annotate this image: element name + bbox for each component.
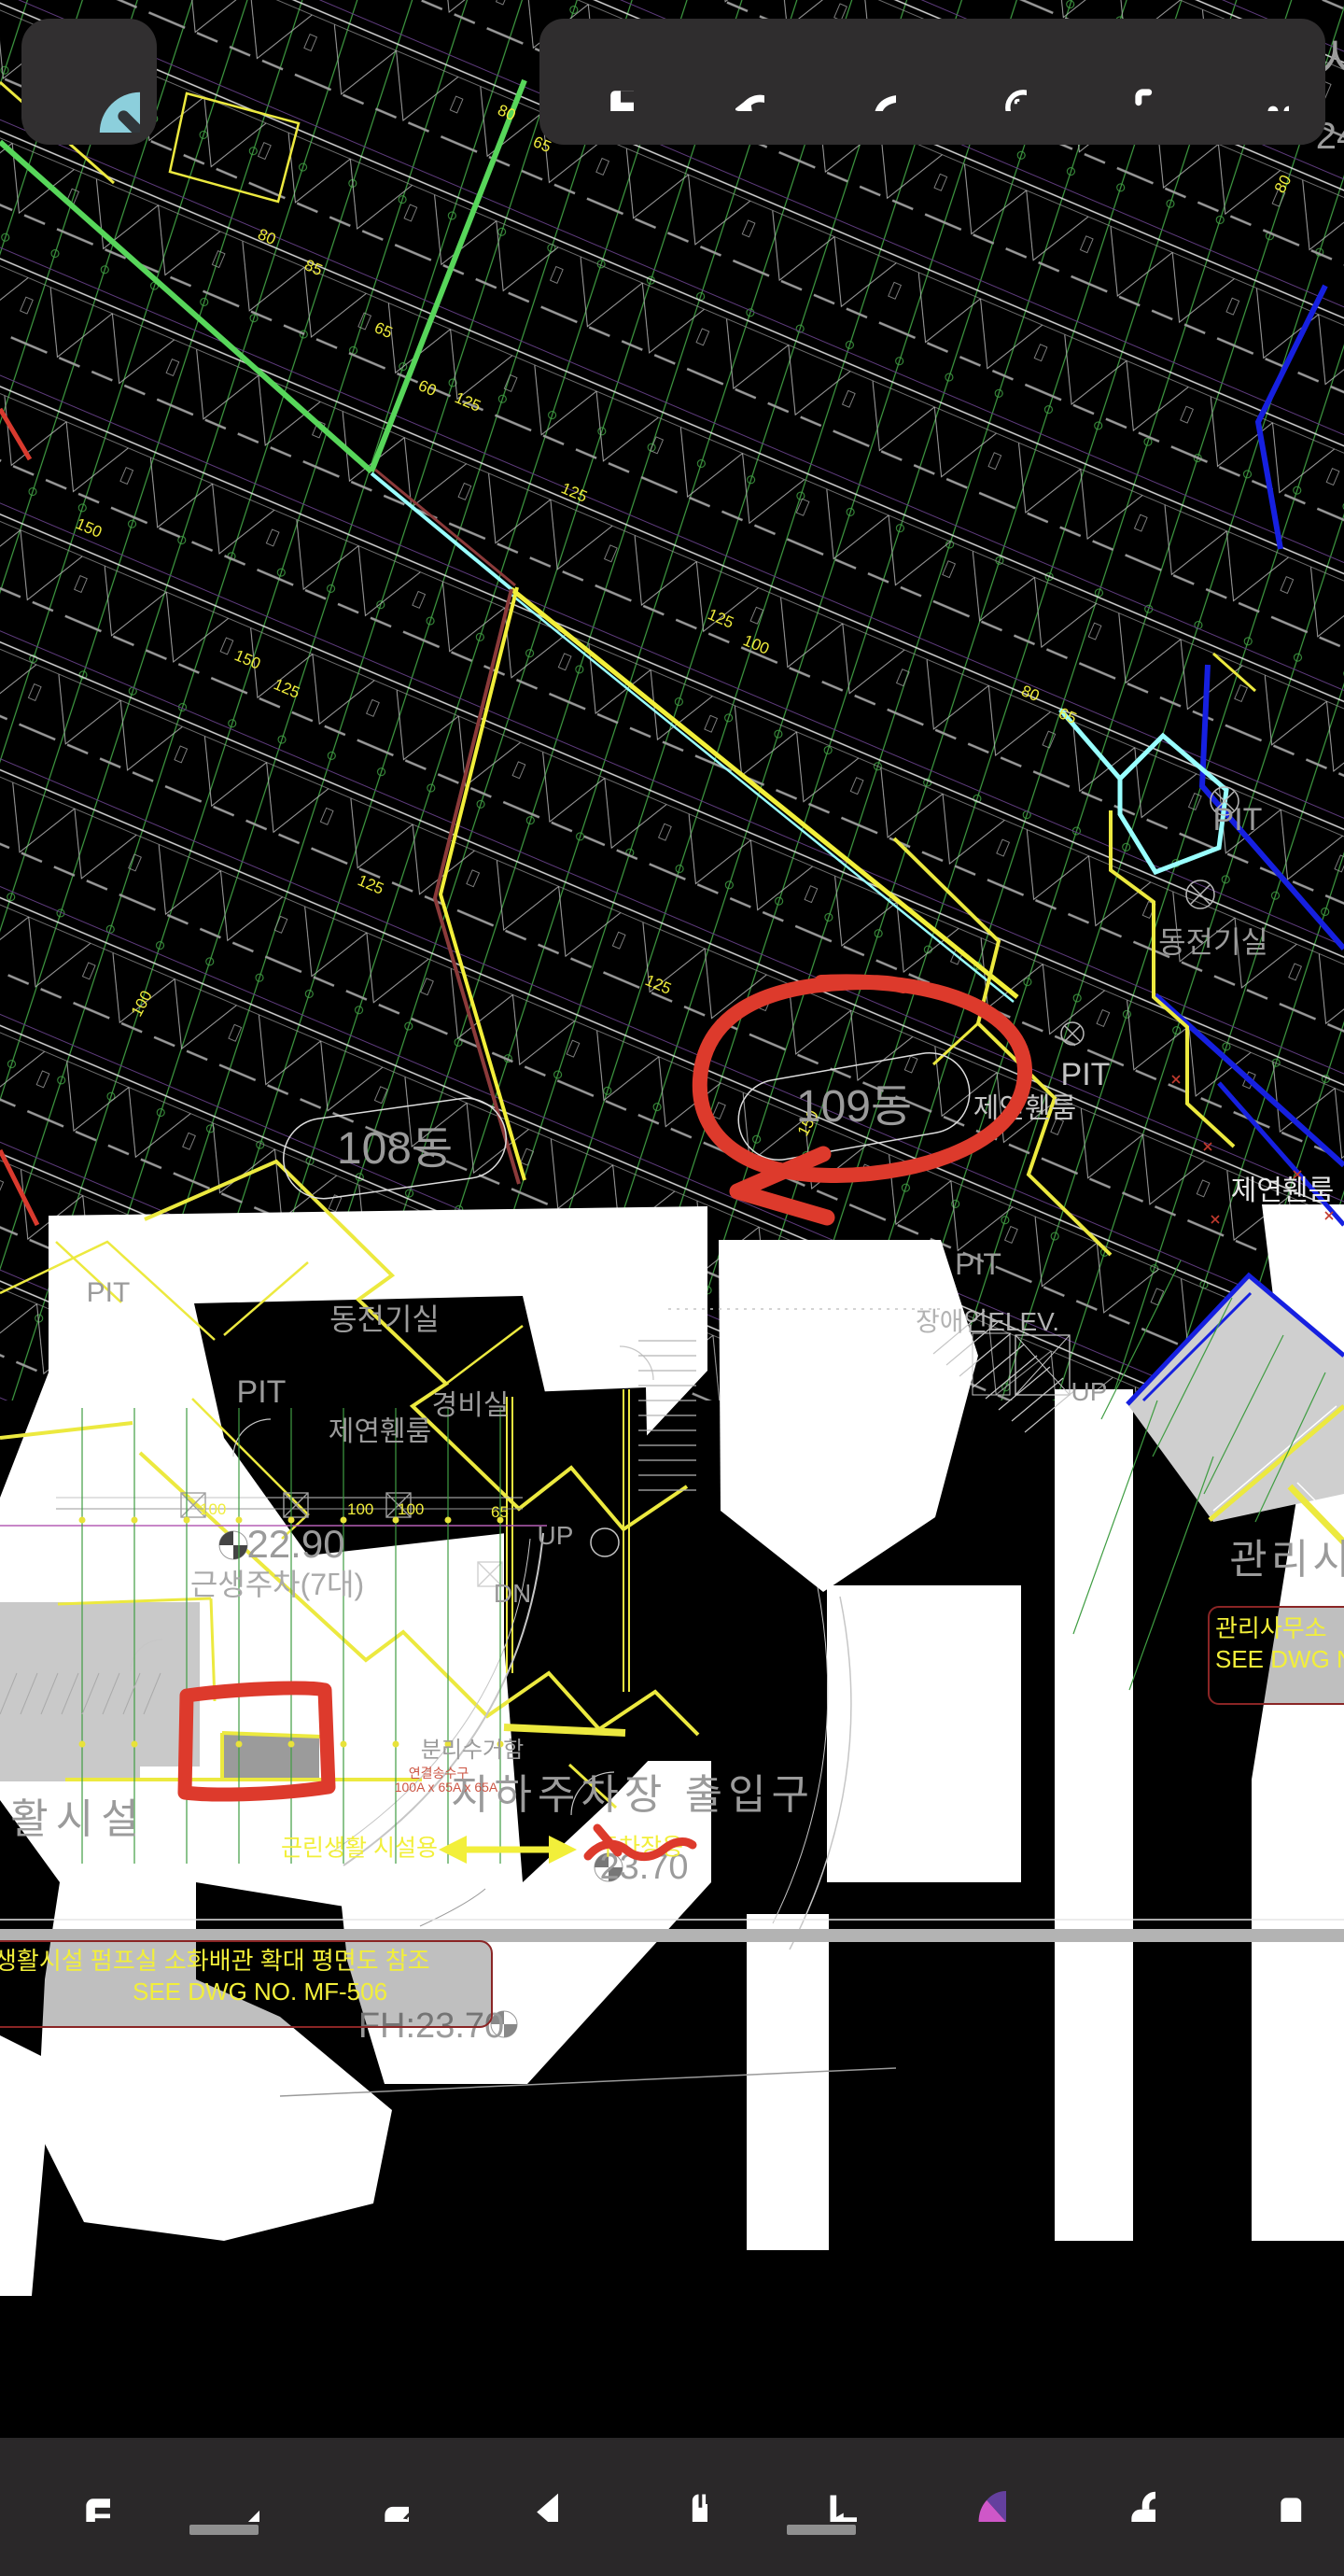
layout-button[interactable] (1213, 2451, 1325, 2522)
selected-style-indicator (189, 2525, 259, 2535)
zoom-extents-button[interactable] (946, 26, 1049, 138)
ref-bottom-line2: SEE DWG NO. MF-506 (133, 1977, 483, 2007)
compose-icon (338, 2451, 409, 2522)
redo-icon (838, 53, 896, 111)
toolbox-icon (1085, 2451, 1155, 2522)
layout-icon (1234, 2451, 1305, 2522)
svg-text:100: 100 (398, 1500, 424, 1518)
svg-text:100: 100 (347, 1500, 373, 1518)
compose-button[interactable] (317, 2451, 429, 2522)
more-icon (1231, 53, 1289, 111)
comment-button[interactable] (19, 2451, 131, 2522)
ref-note-pump-room: 생활시설 펌프실 소화배관 확대 평면도 참조 SEE DWG NO. MF-5… (0, 1940, 493, 2028)
undo-button[interactable] (684, 26, 787, 138)
color-wheel-icon (935, 2451, 1006, 2522)
save-icon (576, 53, 634, 111)
ref-bottom-line1: 생활시설 펌프실 소화배관 확대 평면도 참조 (0, 1946, 483, 1977)
svg-text:65: 65 (491, 1503, 509, 1521)
ref-right-line2: SEE DWG NO. (1215, 1644, 1344, 1675)
comment-icon (39, 2451, 110, 2522)
ruler-icon (637, 2451, 707, 2522)
cad-drawing: 8085656012512512510015015012512580658065… (0, 0, 1344, 2576)
fullscreen-button[interactable] (1077, 26, 1180, 138)
zoom-extents-icon (969, 53, 1027, 111)
pencil-button[interactable] (168, 2451, 280, 2535)
dimension-icon (786, 2451, 857, 2522)
toolbox-button[interactable] (1064, 2451, 1176, 2522)
color-wheel-button[interactable] (915, 2451, 1027, 2522)
ref-right-line1: 관리사무소 (1215, 1613, 1344, 1644)
bottom-toolbar (0, 2438, 1344, 2576)
undo-icon (707, 53, 764, 111)
pencil-icon (189, 2451, 259, 2522)
ref-note-management-office: 관리사무소 SEE DWG NO. (1208, 1606, 1344, 1705)
close-icon (39, 32, 140, 133)
svg-text:100: 100 (200, 1500, 226, 1518)
layers-icon (487, 2451, 558, 2522)
redo-button[interactable] (816, 26, 918, 138)
more-button[interactable] (1209, 26, 1311, 138)
selected-style-indicator (787, 2525, 856, 2535)
dimension-button[interactable] (765, 2451, 877, 2535)
close-button[interactable] (21, 19, 157, 145)
top-toolbar (539, 19, 1325, 145)
app-screen: 8085656012512512510015015012512580658065… (0, 0, 1344, 2576)
ruler-button[interactable] (616, 2451, 728, 2522)
fullscreen-icon (1099, 53, 1157, 111)
layers-button[interactable] (467, 2451, 579, 2522)
drawing-canvas[interactable]: 8085656012512512510015015012512580658065… (0, 0, 1344, 2576)
save-button[interactable] (553, 26, 656, 138)
